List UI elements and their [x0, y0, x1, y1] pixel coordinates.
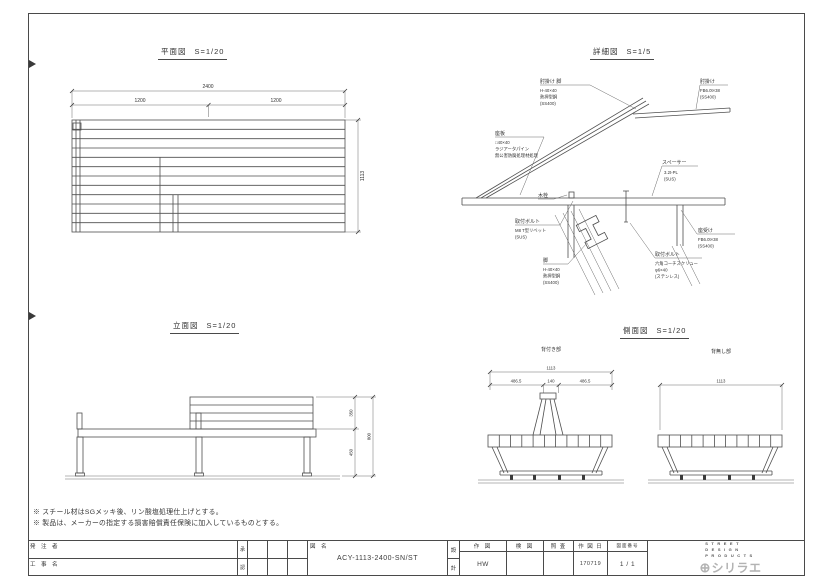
label-spacer-spec2: (SUS) — [664, 177, 676, 182]
side-left-dim-a: 486.5 — [511, 379, 522, 384]
wood-plug-symbol — [569, 192, 574, 198]
label-mount-bolt-left: 取付ボルト — [515, 218, 540, 225]
elevation-view-drawing: 350 450 800 — [60, 315, 400, 495]
side-left-dim-c: 486.5 — [580, 379, 591, 384]
notes: ※ スチール材はSGメッキ後、リン酸塩処理仕上げとする。 ※ 製品は、メーカーの… — [33, 507, 283, 529]
plan-dim-left: 1200 — [134, 98, 145, 104]
side-left-geometry — [478, 393, 624, 483]
label-seat-board: 座板 — [495, 130, 505, 137]
under-seat-supports — [568, 205, 683, 258]
label-seat-support: 座受け — [698, 227, 713, 234]
label-mount-bolt-right-spec2: φ6×40 — [655, 268, 668, 273]
label-leg-spec1: H-40×40 — [543, 267, 560, 272]
backrest-support-cap — [540, 393, 556, 399]
side-title-text: 側面図 — [623, 326, 649, 335]
plan-dimension-lines — [70, 89, 361, 234]
label-mount-bolt-right-spec1: 六角コーチスクリュー — [655, 260, 698, 267]
label-seat-board-spec1: □40×40 — [495, 140, 510, 145]
label-mount-bolt-right-spec3: (ステンレス) — [655, 274, 680, 280]
detail-labels: 肘掛け 脚 H-40×40 熱押型鋼 (SS400) 肘掛け FB6.0t×38… — [495, 78, 721, 285]
label-armrest-leg: 肘掛け 脚 — [540, 78, 561, 85]
ground-line — [478, 480, 624, 483]
bolt-symbol — [623, 191, 629, 222]
label-seat-board-spec2: ラジアータパイン — [495, 146, 529, 153]
frame-tick-mark — [29, 60, 36, 68]
label-armrest-leg-spec2: 熱押型鋼 — [540, 94, 558, 101]
plan-view-title: 平面図S=1/20 — [158, 46, 227, 60]
ground-line — [65, 476, 340, 479]
leg-plates — [662, 447, 778, 473]
plan-dim-right: 1200 — [270, 98, 281, 104]
side-right-section-title: 背無し部 — [711, 348, 731, 355]
side-left-dim-b: 140 — [547, 379, 555, 384]
ground-line — [648, 480, 794, 483]
leg-profile — [77, 437, 83, 473]
seat-slats-section — [488, 435, 612, 447]
plan-view-drawing: 2400 1200 1200 1113 — [55, 75, 400, 250]
backrest-a-frame — [533, 399, 563, 435]
elevation-geometry — [65, 397, 340, 479]
detail-title-text: 詳細図 — [593, 47, 619, 56]
label-armrest-spec1: FB6.0t×38 — [700, 88, 721, 93]
label-mount-bolt-left-spec1: M8 T型リベット — [515, 227, 546, 233]
label-mount-bolt-right: 取付ボルト — [655, 251, 680, 258]
frame-tick-mark — [29, 312, 36, 320]
plan-scale-text: S=1/20 — [195, 47, 225, 56]
label-spacer-spec1: 3.2t-PL — [664, 170, 678, 175]
side-scale-text: S=1/20 — [657, 326, 687, 335]
note-line: ※ 製品は、メーカーの指定する損害賠償責任保険に加入しているものとする。 — [33, 518, 283, 529]
plan-title-text: 平面図 — [161, 47, 187, 56]
label-armrest: 肘掛け — [700, 78, 715, 85]
seat-profile — [78, 429, 316, 437]
detail-scale-text: S=1/5 — [627, 47, 652, 56]
leg-plates — [492, 447, 608, 473]
base-rail — [500, 471, 602, 475]
label-leg-spec3: (SS400) — [543, 280, 559, 285]
base-rail — [670, 471, 772, 475]
label-leg: 脚 — [543, 257, 548, 264]
side-left-section-title: 背付き部 — [541, 346, 561, 353]
armrest-bar — [633, 108, 730, 118]
label-armrest-leg-spec1: H-40×40 — [540, 88, 557, 93]
elevation-dim-total: 800 — [367, 432, 372, 440]
seat-slats-section — [658, 435, 782, 447]
detail-view-drawing: 肘掛け 脚 H-40×40 熱押型鋼 (SS400) 肘掛け FB6.0t×38… — [440, 60, 790, 310]
seat-band — [462, 198, 725, 205]
plan-bench-outline — [72, 120, 345, 232]
detail-view-title: 詳細図S=1/5 — [590, 46, 654, 60]
drawing-sheet: 平面図S=1/20 詳細図S=1/5 立面図S=1/20 側面図S=1/20 2… — [0, 0, 831, 588]
label-seat-support-spec2: (SS400) — [698, 244, 714, 249]
label-mount-bolt-left-spec2: (SUS) — [515, 235, 527, 240]
label-seat-board-spec3: 無公害防腐処理材処理 — [495, 152, 539, 159]
side-view-title: 側面図S=1/20 — [620, 325, 689, 339]
elevation-dim-back: 350 — [349, 409, 354, 417]
label-spacer: スペーサー — [662, 160, 687, 166]
side-view-drawing: 背付き部 背無し部 1113 486.5 140 486.5 1113 — [470, 340, 800, 495]
plan-dim-depth: 1113 — [360, 171, 366, 182]
h-beam-section-icon — [576, 215, 607, 248]
label-wood-plug: 木栓 — [538, 192, 548, 199]
label-leg-spec2: 熱押型鋼 — [543, 273, 561, 280]
plan-dim-total: 2400 — [202, 84, 213, 90]
elevation-dim-seat: 450 — [349, 448, 354, 456]
label-armrest-leg-spec3: (SS400) — [540, 101, 556, 106]
side-dimension-lines — [488, 370, 784, 430]
side-right-dim-total: 1113 — [717, 379, 727, 384]
label-armrest-spec2: (SS400) — [700, 95, 716, 100]
side-left-dim-total: 1113 — [547, 366, 557, 371]
note-line: ※ スチール材はSGメッキ後、リン酸塩処理仕上げとする。 — [33, 507, 283, 518]
side-right-geometry — [648, 435, 794, 483]
label-seat-support-spec1: FB6.0t×38 — [698, 237, 719, 242]
